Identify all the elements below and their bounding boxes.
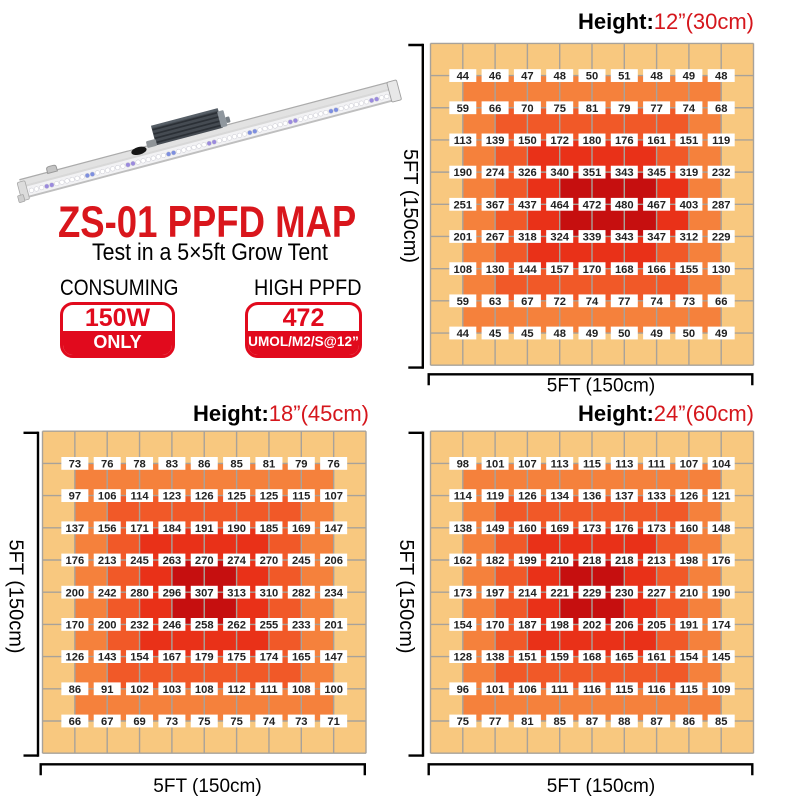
svg-text:324: 324 xyxy=(550,232,569,244)
svg-text:351: 351 xyxy=(583,167,602,179)
svg-text:83: 83 xyxy=(166,459,178,471)
svg-text:101: 101 xyxy=(486,684,505,696)
svg-text:138: 138 xyxy=(486,652,505,664)
svg-text:74: 74 xyxy=(263,716,276,728)
svg-text:79: 79 xyxy=(295,459,307,471)
svg-text:86: 86 xyxy=(198,459,210,471)
svg-text:119: 119 xyxy=(712,135,730,147)
svg-text:175: 175 xyxy=(227,652,246,664)
svg-text:49: 49 xyxy=(586,328,598,340)
svg-text:201: 201 xyxy=(453,232,472,244)
svg-text:103: 103 xyxy=(163,684,182,696)
svg-text:171: 171 xyxy=(130,523,149,535)
svg-text:169: 169 xyxy=(292,523,311,535)
svg-text:165: 165 xyxy=(292,652,311,664)
svg-text:111: 111 xyxy=(551,684,568,696)
svg-text:170: 170 xyxy=(486,620,505,632)
svg-text:91: 91 xyxy=(101,684,113,696)
svg-text:206: 206 xyxy=(324,555,343,567)
svg-text:472: 472 xyxy=(583,199,602,211)
svg-text:97: 97 xyxy=(69,491,81,503)
svg-text:106: 106 xyxy=(98,491,117,503)
svg-text:312: 312 xyxy=(680,232,699,244)
svg-text:160: 160 xyxy=(518,523,537,535)
svg-text:81: 81 xyxy=(586,103,598,115)
svg-text:81: 81 xyxy=(263,459,275,471)
svg-text:68: 68 xyxy=(715,103,727,115)
svg-text:296: 296 xyxy=(163,587,182,599)
svg-text:262: 262 xyxy=(227,620,246,632)
svg-text:77: 77 xyxy=(618,296,630,308)
svg-text:76: 76 xyxy=(327,459,339,471)
svg-text:270: 270 xyxy=(195,555,214,567)
svg-text:45: 45 xyxy=(521,328,533,340)
svg-text:229: 229 xyxy=(583,587,602,599)
svg-text:218: 218 xyxy=(583,555,602,567)
svg-text:5FT (150cm): 5FT (150cm) xyxy=(395,539,417,653)
svg-text:50: 50 xyxy=(683,328,695,340)
svg-text:79: 79 xyxy=(618,103,630,115)
svg-text:138: 138 xyxy=(453,523,472,535)
svg-text:108: 108 xyxy=(292,684,311,696)
svg-text:116: 116 xyxy=(583,684,601,696)
svg-text:73: 73 xyxy=(295,716,307,728)
svg-text:74: 74 xyxy=(683,103,696,115)
svg-text:112: 112 xyxy=(228,684,246,696)
svg-text:51: 51 xyxy=(618,71,630,83)
svg-text:113: 113 xyxy=(454,135,472,147)
svg-text:162: 162 xyxy=(453,555,472,567)
svg-text:47: 47 xyxy=(521,71,533,83)
svg-text:343: 343 xyxy=(615,232,634,244)
svg-text:161: 161 xyxy=(647,652,666,664)
svg-text:187: 187 xyxy=(518,620,537,632)
svg-text:151: 151 xyxy=(518,652,537,664)
svg-text:44: 44 xyxy=(457,328,470,340)
svg-text:190: 190 xyxy=(453,167,472,179)
svg-text:48: 48 xyxy=(553,328,565,340)
svg-text:270: 270 xyxy=(260,555,279,567)
svg-text:340: 340 xyxy=(550,167,569,179)
svg-text:191: 191 xyxy=(195,523,214,535)
svg-text:48: 48 xyxy=(715,71,727,83)
svg-text:154: 154 xyxy=(453,620,472,632)
svg-text:319: 319 xyxy=(680,167,699,179)
svg-text:136: 136 xyxy=(583,491,602,503)
svg-text:76: 76 xyxy=(101,459,113,471)
svg-text:107: 107 xyxy=(324,491,343,503)
svg-text:74: 74 xyxy=(586,296,599,308)
svg-text:245: 245 xyxy=(292,555,311,567)
svg-text:66: 66 xyxy=(489,103,501,115)
svg-text:347: 347 xyxy=(647,232,666,244)
svg-text:48: 48 xyxy=(553,71,565,83)
svg-text:49: 49 xyxy=(683,71,695,83)
svg-text:133: 133 xyxy=(647,491,666,503)
svg-text:258: 258 xyxy=(195,620,214,632)
svg-text:168: 168 xyxy=(615,264,634,276)
svg-text:87: 87 xyxy=(586,716,598,728)
svg-text:66: 66 xyxy=(69,716,81,728)
svg-text:111: 111 xyxy=(648,459,665,471)
svg-text:310: 310 xyxy=(260,587,279,599)
svg-text:73: 73 xyxy=(683,296,695,308)
svg-text:255: 255 xyxy=(260,620,279,632)
svg-text:67: 67 xyxy=(521,296,533,308)
svg-text:5FT (150cm): 5FT (150cm) xyxy=(399,149,421,263)
svg-text:111: 111 xyxy=(260,684,277,696)
svg-text:50: 50 xyxy=(586,71,598,83)
svg-text:232: 232 xyxy=(712,167,731,179)
svg-text:107: 107 xyxy=(518,459,537,471)
svg-text:227: 227 xyxy=(647,587,666,599)
svg-text:367: 367 xyxy=(486,199,505,211)
svg-text:313: 313 xyxy=(227,587,246,599)
svg-text:119: 119 xyxy=(486,491,504,503)
svg-text:467: 467 xyxy=(647,199,666,211)
svg-text:280: 280 xyxy=(130,587,149,599)
svg-text:81: 81 xyxy=(521,716,533,728)
svg-text:106: 106 xyxy=(518,684,537,696)
svg-text:102: 102 xyxy=(130,684,149,696)
svg-text:234: 234 xyxy=(324,587,343,599)
svg-text:165: 165 xyxy=(615,652,634,664)
svg-text:88: 88 xyxy=(618,716,630,728)
svg-text:180: 180 xyxy=(583,135,602,147)
svg-text:464: 464 xyxy=(550,199,569,211)
svg-text:63: 63 xyxy=(489,296,501,308)
svg-text:161: 161 xyxy=(647,135,666,147)
svg-text:125: 125 xyxy=(260,491,279,503)
svg-text:59: 59 xyxy=(457,296,469,308)
svg-text:145: 145 xyxy=(712,652,731,664)
svg-text:210: 210 xyxy=(680,587,699,599)
svg-text:67: 67 xyxy=(101,716,113,728)
svg-text:242: 242 xyxy=(98,587,117,599)
svg-text:307: 307 xyxy=(195,587,214,599)
svg-text:121: 121 xyxy=(712,491,731,503)
svg-text:176: 176 xyxy=(712,555,731,567)
svg-text:74: 74 xyxy=(650,296,663,308)
svg-text:73: 73 xyxy=(69,459,81,471)
svg-text:143: 143 xyxy=(98,652,117,664)
svg-text:229: 229 xyxy=(712,232,731,244)
svg-text:173: 173 xyxy=(647,523,666,535)
svg-text:147: 147 xyxy=(324,523,343,535)
svg-text:213: 213 xyxy=(647,555,666,567)
svg-text:221: 221 xyxy=(550,587,569,599)
svg-text:137: 137 xyxy=(615,491,634,503)
svg-text:139: 139 xyxy=(486,135,505,147)
svg-text:318: 318 xyxy=(518,232,537,244)
svg-text:5FT (150cm): 5FT (150cm) xyxy=(153,776,261,797)
svg-text:213: 213 xyxy=(98,555,117,567)
svg-text:113: 113 xyxy=(551,459,569,471)
svg-text:126: 126 xyxy=(680,491,699,503)
svg-text:78: 78 xyxy=(133,459,145,471)
svg-text:123: 123 xyxy=(163,491,182,503)
svg-text:137: 137 xyxy=(66,523,85,535)
svg-text:251: 251 xyxy=(453,199,472,211)
svg-text:168: 168 xyxy=(583,652,602,664)
svg-text:172: 172 xyxy=(550,135,569,147)
svg-text:156: 156 xyxy=(98,523,117,535)
svg-text:113: 113 xyxy=(615,459,633,471)
svg-text:5FT (150cm): 5FT (150cm) xyxy=(547,376,655,397)
svg-text:75: 75 xyxy=(230,716,242,728)
svg-text:148: 148 xyxy=(712,523,731,535)
svg-text:126: 126 xyxy=(66,652,85,664)
svg-text:108: 108 xyxy=(195,684,214,696)
svg-text:230: 230 xyxy=(615,587,634,599)
svg-text:205: 205 xyxy=(647,620,666,632)
svg-text:179: 179 xyxy=(195,652,214,664)
svg-text:176: 176 xyxy=(615,135,634,147)
svg-text:115: 115 xyxy=(615,684,633,696)
svg-text:232: 232 xyxy=(130,620,149,632)
svg-text:182: 182 xyxy=(486,555,505,567)
svg-text:154: 154 xyxy=(680,652,699,664)
svg-text:70: 70 xyxy=(521,103,533,115)
svg-text:50: 50 xyxy=(618,328,630,340)
svg-text:403: 403 xyxy=(680,199,699,211)
svg-text:287: 287 xyxy=(712,199,731,211)
svg-text:128: 128 xyxy=(453,652,472,664)
svg-text:190: 190 xyxy=(712,587,731,599)
svg-text:114: 114 xyxy=(454,491,473,503)
svg-text:46: 46 xyxy=(489,71,501,83)
svg-text:49: 49 xyxy=(715,328,727,340)
svg-text:149: 149 xyxy=(486,523,505,535)
svg-text:173: 173 xyxy=(583,523,602,535)
svg-text:155: 155 xyxy=(680,264,699,276)
svg-text:75: 75 xyxy=(457,716,469,728)
svg-text:166: 166 xyxy=(647,264,666,276)
svg-text:246: 246 xyxy=(163,620,182,632)
svg-text:66: 66 xyxy=(715,296,727,308)
svg-text:85: 85 xyxy=(715,716,727,728)
svg-text:184: 184 xyxy=(163,523,182,535)
svg-text:174: 174 xyxy=(260,652,279,664)
svg-text:233: 233 xyxy=(292,620,311,632)
svg-text:157: 157 xyxy=(550,264,569,276)
svg-text:198: 198 xyxy=(680,555,699,567)
svg-text:86: 86 xyxy=(683,716,695,728)
svg-text:107: 107 xyxy=(680,459,699,471)
svg-text:185: 185 xyxy=(260,523,279,535)
svg-text:214: 214 xyxy=(518,587,537,599)
svg-text:151: 151 xyxy=(680,135,699,147)
svg-text:115: 115 xyxy=(292,491,310,503)
svg-text:86: 86 xyxy=(69,684,81,696)
svg-text:116: 116 xyxy=(648,684,666,696)
svg-text:69: 69 xyxy=(133,716,145,728)
svg-text:114: 114 xyxy=(131,491,150,503)
svg-text:44: 44 xyxy=(457,71,470,83)
svg-text:267: 267 xyxy=(486,232,505,244)
svg-text:159: 159 xyxy=(550,652,569,664)
svg-text:100: 100 xyxy=(324,684,343,696)
svg-text:85: 85 xyxy=(230,459,242,471)
svg-text:176: 176 xyxy=(615,523,634,535)
svg-text:343: 343 xyxy=(615,167,634,179)
svg-text:210: 210 xyxy=(550,555,569,567)
svg-text:5FT (150cm): 5FT (150cm) xyxy=(5,539,27,653)
svg-text:150: 150 xyxy=(518,135,537,147)
svg-text:134: 134 xyxy=(550,491,569,503)
svg-text:198: 198 xyxy=(550,620,569,632)
svg-text:169: 169 xyxy=(550,523,569,535)
svg-text:274: 274 xyxy=(227,555,246,567)
svg-text:160: 160 xyxy=(680,523,699,535)
svg-text:108: 108 xyxy=(453,264,472,276)
svg-text:147: 147 xyxy=(324,652,343,664)
svg-text:202: 202 xyxy=(583,620,602,632)
svg-text:339: 339 xyxy=(583,232,602,244)
svg-text:173: 173 xyxy=(453,587,472,599)
svg-text:274: 274 xyxy=(486,167,505,179)
svg-text:72: 72 xyxy=(553,296,565,308)
svg-text:87: 87 xyxy=(650,716,662,728)
svg-text:75: 75 xyxy=(553,103,565,115)
svg-text:326: 326 xyxy=(518,167,537,179)
svg-text:130: 130 xyxy=(486,264,505,276)
svg-text:206: 206 xyxy=(615,620,634,632)
svg-text:77: 77 xyxy=(650,103,662,115)
svg-text:167: 167 xyxy=(163,652,182,664)
svg-text:71: 71 xyxy=(327,716,339,728)
svg-text:191: 191 xyxy=(680,620,699,632)
svg-text:45: 45 xyxy=(489,328,501,340)
svg-text:170: 170 xyxy=(66,620,85,632)
svg-text:59: 59 xyxy=(457,103,469,115)
svg-text:154: 154 xyxy=(130,652,149,664)
svg-text:115: 115 xyxy=(583,459,601,471)
svg-text:200: 200 xyxy=(98,620,117,632)
svg-text:263: 263 xyxy=(163,555,182,567)
svg-text:101: 101 xyxy=(486,459,505,471)
svg-text:77: 77 xyxy=(489,716,501,728)
svg-text:73: 73 xyxy=(166,716,178,728)
svg-text:130: 130 xyxy=(712,264,731,276)
svg-text:170: 170 xyxy=(583,264,602,276)
svg-text:245: 245 xyxy=(130,555,149,567)
svg-text:197: 197 xyxy=(486,587,505,599)
svg-text:104: 104 xyxy=(712,459,731,471)
svg-text:96: 96 xyxy=(457,684,469,696)
svg-text:199: 199 xyxy=(518,555,537,567)
svg-text:345: 345 xyxy=(647,167,666,179)
svg-text:176: 176 xyxy=(66,555,85,567)
svg-text:200: 200 xyxy=(66,587,85,599)
svg-text:218: 218 xyxy=(615,555,634,567)
svg-text:115: 115 xyxy=(680,684,698,696)
svg-text:437: 437 xyxy=(518,199,537,211)
svg-text:144: 144 xyxy=(518,264,537,276)
svg-text:98: 98 xyxy=(457,459,469,471)
svg-text:282: 282 xyxy=(292,587,311,599)
svg-text:85: 85 xyxy=(553,716,565,728)
svg-text:126: 126 xyxy=(195,491,214,503)
svg-text:125: 125 xyxy=(227,491,246,503)
svg-text:201: 201 xyxy=(324,620,343,632)
svg-text:109: 109 xyxy=(712,684,731,696)
svg-text:75: 75 xyxy=(198,716,210,728)
svg-text:174: 174 xyxy=(712,620,731,632)
svg-text:190: 190 xyxy=(227,523,246,535)
svg-text:480: 480 xyxy=(615,199,634,211)
svg-text:49: 49 xyxy=(650,328,662,340)
svg-text:48: 48 xyxy=(650,71,662,83)
svg-text:5FT (150cm): 5FT (150cm) xyxy=(547,776,655,797)
svg-text:126: 126 xyxy=(518,491,537,503)
